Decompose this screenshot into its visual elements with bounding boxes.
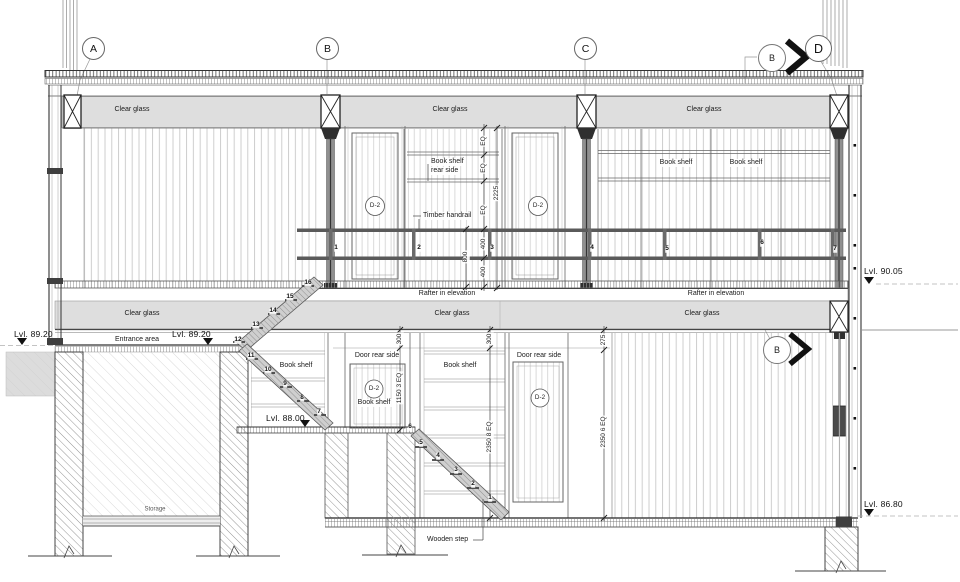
section-marker-top: B (758, 44, 786, 72)
step-number: 2 (471, 481, 475, 488)
label-door-rear-side: Door rear side (516, 352, 562, 360)
label-book-shelf: Book shelf (659, 159, 694, 167)
step-number: 3 (454, 467, 458, 474)
step-number: 14 (269, 308, 276, 315)
section-marker-mid: B (763, 336, 791, 364)
label-clear-glass: Clear glass (685, 106, 722, 114)
label-storage: Storage (143, 507, 166, 514)
label-entrance-area: Entrance area (114, 336, 160, 344)
label-rafter: Rafter in elevation (687, 290, 745, 298)
post-number: 3 (490, 245, 494, 252)
step-number: 16 (304, 280, 311, 287)
label-clear-glass: Clear glass (113, 106, 150, 114)
upper-level-walls (62, 126, 848, 288)
step-number: 4 (436, 453, 440, 460)
step-number: 10 (264, 367, 271, 374)
post-number: 2 (417, 245, 421, 252)
drawing-linework (0, 0, 960, 582)
label-door-rear-side: Door rear side (354, 352, 400, 360)
post-number: 1 (334, 245, 338, 252)
step-number: 6 (408, 424, 412, 431)
grid-bubble-b: B (316, 37, 339, 60)
step-number: 7 (317, 409, 321, 416)
entrance-and-basement (6, 345, 280, 558)
dim-eq: EQ (481, 135, 488, 146)
label-d2: D-2 (370, 203, 380, 209)
step-number: 13 (252, 322, 259, 329)
label-timber-handrail: Timber handrail (423, 212, 471, 220)
dim-400: 400 (481, 238, 488, 251)
dim-300: 300 (397, 333, 404, 346)
label-clear-glass: Clear glass (683, 310, 720, 318)
dim-800: 800 (463, 251, 470, 264)
mezzanine-floor (55, 281, 848, 333)
grid-bubble-a: A (82, 37, 105, 60)
step-number: 5 (419, 440, 423, 447)
post-number: 4 (590, 245, 594, 252)
level-8800: Lvl. 88.00 (266, 413, 305, 423)
step-number: 8 (300, 395, 304, 402)
label-book-shelf: Book shelf (357, 399, 392, 407)
label-d2: D-2 (535, 395, 545, 401)
label-rafter: Rafter in elevation (418, 290, 476, 298)
dim-400: 400 (481, 266, 488, 279)
label-book-shelf: Book shelf (729, 159, 764, 167)
label-d2: D-2 (533, 203, 543, 209)
grid-bubble-c: C (574, 37, 597, 60)
label-clear-glass: Clear glass (433, 310, 470, 318)
dim-300: 300 (487, 333, 494, 346)
dim-275: 275 (601, 334, 608, 347)
step-number: 9 (283, 381, 287, 388)
dim-eq: EQ (481, 162, 488, 173)
step-number: 1 (488, 495, 492, 502)
dim-2350-6eq: 2350 6 EQ (601, 415, 608, 448)
post-number: 6 (760, 240, 764, 247)
above-roof-lines (63, 0, 847, 70)
dim-1150-3eq: 1150 3 EQ (397, 372, 404, 405)
level-8920-left: Lvl. 89.20 (14, 329, 53, 339)
post-number: 7 (833, 246, 837, 253)
label-book-shelf: Book shelf (279, 362, 314, 370)
dim-2225: 2225 (494, 185, 501, 201)
right-wall-assembly (849, 85, 958, 518)
label-wooden-step: Wooden step (427, 536, 468, 544)
level-8680: Lvl. 86.80 (864, 499, 903, 509)
post-number: 5 (665, 246, 669, 253)
step-number: 12 (234, 337, 241, 344)
dim-eq: EQ (481, 204, 488, 215)
label-book-shelf-rear: Book shelf (431, 158, 464, 166)
label-d2: D-2 (369, 386, 379, 392)
step-number: 15 (286, 294, 293, 301)
roof-assembly (45, 71, 863, 97)
section-drawing: A B C D B B Clear glass Clear glass Clea… (0, 0, 960, 582)
label-book-shelf: Book shelf (443, 362, 478, 370)
grid-bubble-d: D (805, 35, 832, 62)
label-rear-side: rear side (431, 167, 458, 175)
label-clear-glass: Clear glass (431, 106, 468, 114)
level-8920-right: Lvl. 89.20 (172, 329, 211, 339)
label-clear-glass: Clear glass (123, 310, 160, 318)
dim-2350-8eq: 2350 8 EQ (487, 420, 494, 453)
level-9005: Lvl. 90.05 (864, 266, 903, 276)
step-number: 11 (248, 353, 255, 360)
